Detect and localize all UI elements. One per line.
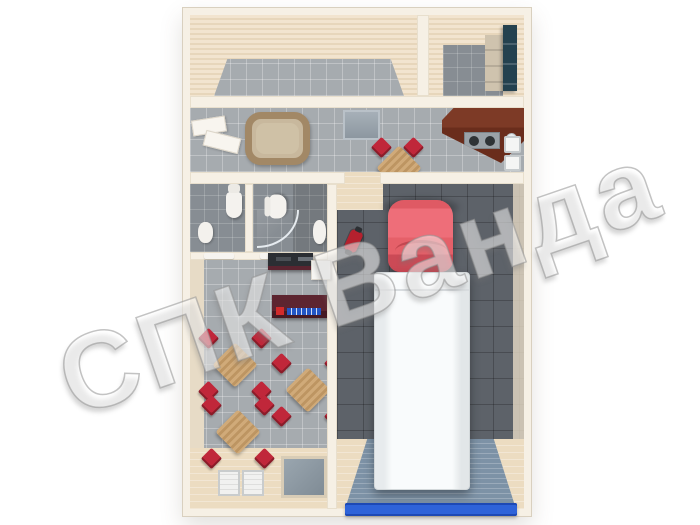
red-chair xyxy=(254,395,275,416)
dining-table-set xyxy=(200,394,276,470)
open-door-leaf xyxy=(203,130,242,154)
wall-corridor-south-right xyxy=(380,172,524,184)
wc-1 xyxy=(190,184,245,252)
red-chair xyxy=(254,448,275,469)
wall-window xyxy=(504,136,521,153)
beige-lockers xyxy=(485,35,503,91)
reception-desk xyxy=(268,253,313,270)
brand-logo-text xyxy=(287,308,321,315)
red-chair xyxy=(201,448,222,469)
red-chair xyxy=(198,328,219,349)
doormat-gray xyxy=(343,110,380,140)
red-chair xyxy=(251,328,272,349)
garage-entry-floor xyxy=(337,184,383,210)
bathtub xyxy=(245,112,310,165)
wall-wc-divider xyxy=(245,184,253,252)
red-car xyxy=(388,200,453,272)
wc-2-shower xyxy=(253,184,327,252)
dining-table xyxy=(212,342,257,387)
door-sill xyxy=(204,253,234,259)
burner xyxy=(485,136,495,146)
burner-unit xyxy=(464,132,500,149)
brand-logo-red xyxy=(276,307,284,315)
white-counter xyxy=(311,260,331,280)
wall-corridor-north xyxy=(190,96,524,108)
cafe-dining-room xyxy=(190,260,327,509)
teal-locker-cabinet xyxy=(503,25,517,91)
garage-bay xyxy=(337,184,524,509)
dining-table xyxy=(285,367,327,412)
locker-room xyxy=(429,15,524,96)
garage-doorway xyxy=(345,172,380,184)
wall-window xyxy=(504,155,521,171)
display-counter xyxy=(272,295,327,318)
wall-corridor-south-left xyxy=(190,172,345,184)
sink xyxy=(198,222,213,243)
red-motorcycle xyxy=(343,228,364,253)
building-outline xyxy=(183,8,531,516)
red-chair xyxy=(201,395,222,416)
kitchen-corridor xyxy=(190,108,524,172)
floor-plan-render: СПК Ванда xyxy=(0,0,700,525)
sink xyxy=(313,220,326,244)
wall-top-rooms-divider xyxy=(417,15,429,96)
wall-garage-west xyxy=(327,184,337,509)
dining-table xyxy=(215,409,260,454)
dining-table-set xyxy=(270,352,327,428)
recessed-gray-mat xyxy=(281,456,327,498)
dining-table-set xyxy=(197,327,273,403)
red-chair xyxy=(271,353,292,374)
storage-room xyxy=(190,15,417,96)
white-doormat xyxy=(242,470,264,496)
blue-roller-door-threshold xyxy=(345,503,517,516)
burner xyxy=(469,136,479,146)
white-box-truck xyxy=(374,272,470,490)
storage-room-floor xyxy=(214,59,404,96)
white-doormat xyxy=(218,470,240,496)
toilet xyxy=(226,192,242,218)
